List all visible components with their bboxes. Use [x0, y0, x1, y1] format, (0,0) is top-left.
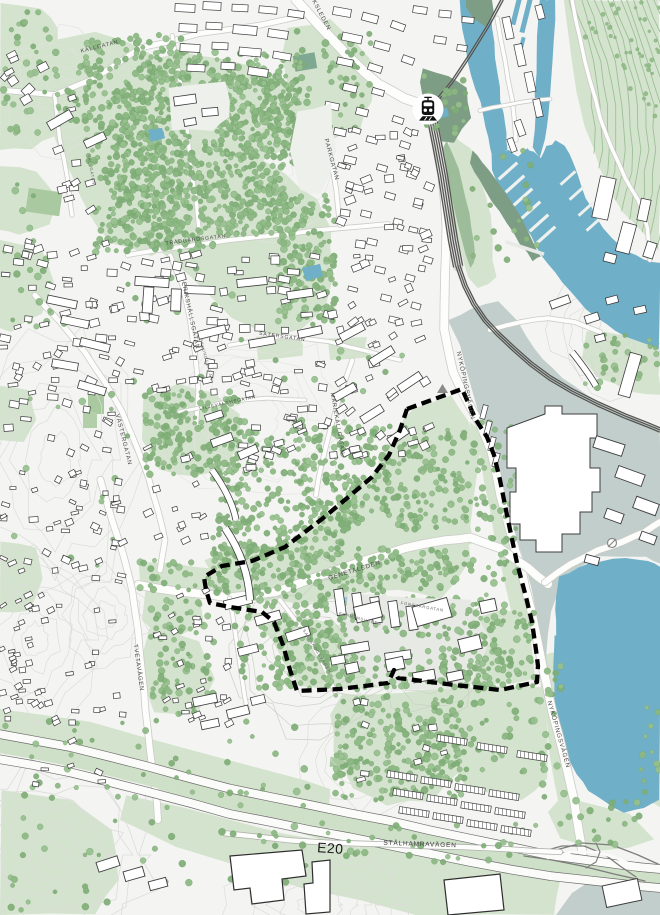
svg-text:E20: E20 — [317, 839, 344, 857]
